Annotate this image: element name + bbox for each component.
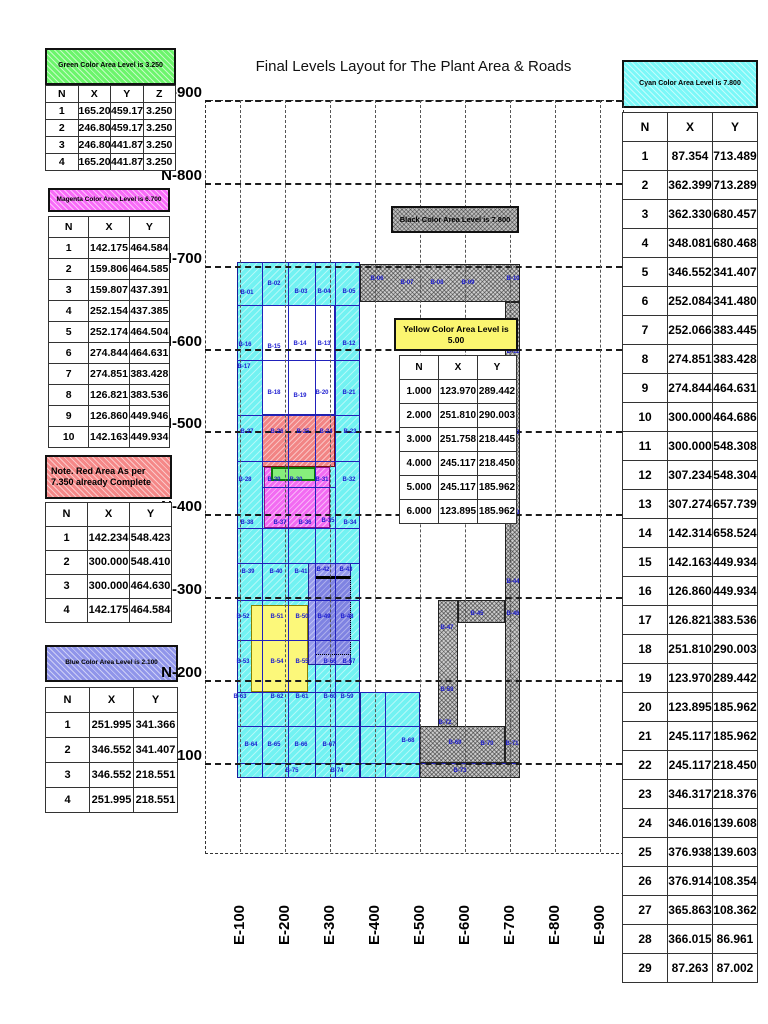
cell: 1: [46, 527, 88, 551]
cell: 274.851: [668, 345, 713, 374]
table-row: 16126.860449.934: [623, 577, 758, 606]
e-axis-label: E-700: [501, 857, 519, 945]
cell: 290.003: [713, 635, 758, 664]
green-table: NXYZ1165.201459.1773.2502246.802459.1783…: [45, 85, 176, 171]
e-gridline: [240, 100, 241, 852]
cell: 548.304: [713, 461, 758, 490]
cell: 289.442: [478, 380, 517, 404]
cell: 14: [623, 519, 668, 548]
cell: 10: [49, 427, 89, 448]
n-gridline: [205, 183, 622, 185]
block-label: B-24: [319, 429, 332, 435]
cell: 3.000: [400, 428, 439, 452]
cell: 1: [46, 103, 79, 120]
table-row: 6.000123.895185.962: [400, 500, 517, 524]
table-row: 6252.084341.480: [623, 287, 758, 316]
cell: 3: [46, 575, 88, 599]
cell: 218.445: [478, 428, 517, 452]
cell: 185.962: [478, 500, 517, 524]
block-label: B-35: [321, 518, 334, 524]
table-row: 1142.234548.423: [46, 527, 172, 551]
table-row: 2246.802459.1783.250: [46, 120, 176, 137]
cell: 274.851: [89, 364, 129, 385]
cell: 464.584: [129, 238, 169, 259]
table-row: 25376.938139.603: [623, 838, 758, 867]
cell: 3: [46, 763, 90, 788]
table-header-row: NXY: [400, 356, 517, 380]
cyan-table: NXY187.354713.4892362.399713.2893362.330…: [622, 112, 758, 983]
block-label: B-52: [236, 614, 249, 620]
table-row: 9274.844464.631: [623, 374, 758, 403]
cell: 2: [49, 259, 89, 280]
block-label: B-01: [240, 290, 253, 296]
page-title: Final Levels Layout for The Plant Area &…: [205, 58, 622, 75]
cell: 2: [623, 171, 668, 200]
cell: 3.250: [143, 120, 176, 137]
table-row: 1142.175464.584: [49, 238, 170, 259]
block-label: B-64: [244, 742, 257, 748]
block-label: B-21: [342, 390, 355, 396]
cell: 3: [46, 137, 79, 154]
e-gridline: [375, 100, 376, 852]
block-label: B-65: [267, 742, 280, 748]
cell: 86.961: [713, 925, 758, 954]
column-header: Y: [111, 86, 144, 103]
block-label: B-18: [267, 390, 280, 396]
cell: 8: [49, 385, 89, 406]
column-header: N: [400, 356, 439, 380]
table-row: 3362.330680.457: [623, 200, 758, 229]
block-label: B-36: [298, 520, 311, 526]
block-label: B-20: [315, 390, 328, 396]
cell: 449.946: [129, 406, 169, 427]
table-row: 3159.807437.391: [49, 280, 170, 301]
cell: 29: [623, 954, 668, 983]
block-label: B-14: [293, 341, 306, 347]
n-gridline: [205, 597, 622, 599]
cell: 13: [623, 490, 668, 519]
table-header-row: NXY: [46, 688, 178, 713]
cell: 464.585: [129, 259, 169, 280]
block-label: B-31: [315, 477, 328, 483]
block-label: B-69: [448, 740, 461, 746]
block-label: B-48: [340, 614, 353, 620]
cell: 9: [49, 406, 89, 427]
column-header: Y: [478, 356, 517, 380]
cell: 464.686: [713, 403, 758, 432]
cell: 17: [623, 606, 668, 635]
cell: 548.423: [130, 527, 172, 551]
table-row: 21245.117185.962: [623, 722, 758, 751]
block-label: B-67: [322, 742, 335, 748]
block-label: B-45: [470, 611, 483, 617]
cell: 680.457: [713, 200, 758, 229]
cell: 365.863: [668, 896, 713, 925]
n-axis-label: N-200: [130, 664, 202, 681]
table-row: 17126.821383.536: [623, 606, 758, 635]
table-row: 2.000251.810290.003: [400, 404, 517, 428]
block-label: B-05: [342, 289, 355, 295]
table-row: 26376.914108.354: [623, 867, 758, 896]
cell: 548.308: [713, 432, 758, 461]
block-label: B-04: [317, 289, 330, 295]
cell: 464.584: [130, 599, 172, 623]
block-label: B-73: [453, 768, 466, 774]
cell: 9: [623, 374, 668, 403]
cell: 11: [623, 432, 668, 461]
cell: 185.962: [713, 693, 758, 722]
cell: 2.000: [400, 404, 439, 428]
cell: 437.391: [129, 280, 169, 301]
cell: 383.445: [713, 316, 758, 345]
block-label: B-68: [401, 738, 414, 744]
cell: 5: [623, 258, 668, 287]
block-label: B-44: [506, 579, 519, 585]
table-row: 8274.851383.428: [623, 345, 758, 374]
e-axis-label: E-500: [411, 857, 429, 945]
cell: 341.407: [134, 738, 178, 763]
table-row: 2346.552341.407: [46, 738, 178, 763]
block-label: B-10: [506, 276, 519, 282]
block-label: B-17: [237, 364, 250, 370]
e-axis-label: E-900: [591, 857, 609, 945]
cell: 300.000: [88, 551, 130, 575]
cell: 23: [623, 780, 668, 809]
block-label: B-03: [294, 289, 307, 295]
block-label: B-27: [240, 429, 253, 435]
cell: 366.015: [668, 925, 713, 954]
cell: 346.317: [668, 780, 713, 809]
column-header: X: [668, 113, 713, 142]
cell: 307.274: [668, 490, 713, 519]
n-gridline: [205, 100, 622, 102]
yellow-legend-box: Yellow Color Area Level is 5.00: [394, 318, 518, 351]
e-axis-label: E-100: [231, 857, 249, 945]
cell: 24: [623, 809, 668, 838]
table-row: 5346.552341.407: [623, 258, 758, 287]
block-label: B-08: [430, 280, 443, 286]
cell: 185.962: [713, 722, 758, 751]
table-row: 15142.163449.934: [623, 548, 758, 577]
block-label: B-42: [316, 567, 329, 573]
table-row: 23346.317218.376: [623, 780, 758, 809]
table-row: 7252.066383.445: [623, 316, 758, 345]
cell: 126.860: [668, 577, 713, 606]
e-axis-label: E-200: [276, 857, 294, 945]
column-header: N: [49, 217, 89, 238]
cell: 252.154: [89, 301, 129, 322]
block-label: B-32: [342, 477, 355, 483]
cell: 4: [623, 229, 668, 258]
table-row: 4252.154437.385: [49, 301, 170, 322]
block-label: B-62: [270, 694, 283, 700]
cell: 218.450: [478, 452, 517, 476]
block-label: B-06: [370, 276, 383, 282]
yellow-table: NXY1.000123.970289.4422.000251.810290.00…: [399, 355, 517, 524]
cell: 1: [623, 142, 668, 171]
cell: 3.250: [143, 103, 176, 120]
cell: 123.970: [439, 380, 478, 404]
cell: 5.000: [400, 476, 439, 500]
cell: 6: [623, 287, 668, 316]
cell: 449.934: [713, 548, 758, 577]
cell: 346.552: [90, 763, 134, 788]
cell: 245.117: [439, 476, 478, 500]
cell: 680.468: [713, 229, 758, 258]
cell: 252.084: [668, 287, 713, 316]
cell: 383.428: [713, 345, 758, 374]
cell: 459.178: [111, 120, 144, 137]
cell: 4: [49, 301, 89, 322]
block-label: B-63: [233, 694, 246, 700]
cell: 218.551: [134, 763, 178, 788]
cell: 1: [49, 238, 89, 259]
table-row: 187.354713.489: [623, 142, 758, 171]
cell: 20: [623, 693, 668, 722]
cell: 383.428: [129, 364, 169, 385]
cell: 713.489: [713, 142, 758, 171]
e-gridline: [285, 100, 286, 852]
table-row: 4142.175464.584: [46, 599, 172, 623]
block-label: B-13: [317, 341, 330, 347]
cell: 251.810: [439, 404, 478, 428]
cell: 28: [623, 925, 668, 954]
cell: 139.608: [713, 809, 758, 838]
cell: 218.376: [713, 780, 758, 809]
cell: 459.177: [111, 103, 144, 120]
cell: 251.995: [90, 788, 134, 813]
cell: 307.234: [668, 461, 713, 490]
column-header: N: [46, 503, 88, 527]
cell: 87.002: [713, 954, 758, 983]
block-label: B-56: [323, 659, 336, 665]
cell: 274.844: [89, 343, 129, 364]
cell: 16: [623, 577, 668, 606]
table-row: 4.000245.117218.450: [400, 452, 517, 476]
cell: 658.524: [713, 519, 758, 548]
red-note-text: Note. Red Area As per 7.350 already Comp…: [51, 466, 151, 489]
cell: 142.175: [88, 599, 130, 623]
red-table: NXY1142.234548.4232300.000548.4103300.00…: [45, 502, 172, 623]
cell: 165.202: [78, 154, 111, 171]
cell: 437.385: [129, 301, 169, 322]
block-label: B-60: [323, 694, 336, 700]
cell: 185.962: [478, 476, 517, 500]
cell: 449.934: [129, 427, 169, 448]
table-row: 12307.234548.304: [623, 461, 758, 490]
block-label: B-74: [330, 768, 343, 774]
table-row: 4165.202441.8763.250: [46, 154, 176, 171]
table-row: 9126.860449.946: [49, 406, 170, 427]
table-header-row: NXY: [46, 503, 172, 527]
block-label: B-58: [440, 687, 453, 693]
cell: 12: [623, 461, 668, 490]
block-label: B-57: [342, 659, 355, 665]
block-label: B-75: [285, 768, 298, 774]
table-row: 2362.399713.289: [623, 171, 758, 200]
block-label: B-49: [317, 614, 330, 620]
cell: 252.174: [89, 322, 129, 343]
column-header: X: [90, 688, 134, 713]
column-header: Y: [134, 688, 178, 713]
red-note-box: Note. Red Area As per 7.350 already Comp…: [45, 455, 172, 499]
cell: 464.631: [713, 374, 758, 403]
cell: 346.016: [668, 809, 713, 838]
e-axis-label: E-300: [321, 857, 339, 945]
cell: 123.895: [439, 500, 478, 524]
block-label: B-71: [505, 741, 518, 747]
table-header-row: NXY: [623, 113, 758, 142]
e-gridline: [330, 100, 331, 852]
column-header: Y: [130, 503, 172, 527]
cell: 383.536: [713, 606, 758, 635]
table-row: 13307.274657.739: [623, 490, 758, 519]
cell: 362.330: [668, 200, 713, 229]
table-row: 4251.995218.551: [46, 788, 178, 813]
block-label: B-37: [273, 520, 286, 526]
table-row: 3.000251.758218.445: [400, 428, 517, 452]
cell: 341.407: [713, 258, 758, 287]
table-row: 1165.201459.1773.250: [46, 103, 176, 120]
block-label: B-16: [238, 342, 251, 348]
cell: 300.000: [88, 575, 130, 599]
table-row: 2300.000548.410: [46, 551, 172, 575]
table-row: 11300.000548.308: [623, 432, 758, 461]
block-label: B-23: [343, 429, 356, 435]
block-label: B-29: [267, 477, 280, 483]
cell: 159.806: [89, 259, 129, 280]
cell: 19: [623, 664, 668, 693]
table-header-row: NXYZ: [46, 86, 176, 103]
block-label: B-55: [295, 659, 308, 665]
cell: 2: [46, 738, 90, 763]
column-header: X: [78, 86, 111, 103]
table-row: 2987.26387.002: [623, 954, 758, 983]
cell: 252.066: [668, 316, 713, 345]
block-label: B-25: [296, 429, 309, 435]
cell: 4: [46, 599, 88, 623]
cell: 1.000: [400, 380, 439, 404]
cell: 290.003: [478, 404, 517, 428]
table-row: 1.000123.970289.442: [400, 380, 517, 404]
table-row: 27365.863108.362: [623, 896, 758, 925]
cell: 139.603: [713, 838, 758, 867]
block-label: B-72: [438, 720, 451, 726]
cell: 376.914: [668, 867, 713, 896]
table-row: 14142.314658.524: [623, 519, 758, 548]
e-gridline: [555, 100, 556, 852]
cell: 383.536: [129, 385, 169, 406]
table-row: 5252.174464.504: [49, 322, 170, 343]
column-header: N: [46, 86, 79, 103]
table-header-row: NXY: [49, 217, 170, 238]
cell: 7: [49, 364, 89, 385]
e-axis-label: E-600: [456, 857, 474, 945]
cell: 3.250: [143, 137, 176, 154]
cell: 126.860: [89, 406, 129, 427]
magenta-table: NXY1142.175464.5842159.806464.5853159.80…: [48, 216, 170, 448]
cell: 108.362: [713, 896, 758, 925]
black-legend-box: Black Color Area Level is 7.800: [391, 206, 519, 233]
cell: 245.117: [668, 751, 713, 780]
cell: 6: [49, 343, 89, 364]
column-header: N: [46, 688, 90, 713]
cell: 6.000: [400, 500, 439, 524]
cell: 3: [49, 280, 89, 301]
cell: 300.000: [668, 403, 713, 432]
cell: 108.354: [713, 867, 758, 896]
cell: 657.739: [713, 490, 758, 519]
cell: 8: [623, 345, 668, 374]
block-label: B-51: [270, 614, 283, 620]
block-label: B-47: [440, 625, 453, 631]
cell: 245.117: [439, 452, 478, 476]
cell: 441.878: [111, 137, 144, 154]
block-label: B-59: [340, 694, 353, 700]
table-row: 19123.970289.442: [623, 664, 758, 693]
column-header: Y: [129, 217, 169, 238]
cell: 464.631: [129, 343, 169, 364]
table-row: 7274.851383.428: [49, 364, 170, 385]
cell: 218.450: [713, 751, 758, 780]
block-label: B-39: [241, 569, 254, 575]
cell: 251.758: [439, 428, 478, 452]
magenta-legend-box: Magenta Color Area Level is 6.700: [48, 188, 170, 212]
e-gridline: [600, 100, 601, 852]
cell: 251.995: [90, 713, 134, 738]
cell: 10: [623, 403, 668, 432]
table-row: 2159.806464.585: [49, 259, 170, 280]
block-label: B-28: [238, 477, 251, 483]
cell: 15: [623, 548, 668, 577]
cell: 142.163: [668, 548, 713, 577]
block-label: B-46: [506, 611, 519, 617]
cell: 3: [623, 200, 668, 229]
cell: 4: [46, 788, 90, 813]
cell: 126.821: [668, 606, 713, 635]
cell: 4: [46, 154, 79, 171]
cell: 246.801: [78, 137, 111, 154]
e-axis-label: E-800: [546, 857, 564, 945]
table-row: 10300.000464.686: [623, 403, 758, 432]
cell: 245.117: [668, 722, 713, 751]
cell: 159.807: [89, 280, 129, 301]
cell: 346.552: [90, 738, 134, 763]
cell: 18: [623, 635, 668, 664]
cell: 2: [46, 120, 79, 137]
green-legend-box: Green Color Area Level is 3.250: [45, 48, 176, 85]
cell: 3.250: [143, 154, 176, 171]
block-label: B-53: [236, 659, 249, 665]
block-label: B-70: [480, 741, 493, 747]
cell: 548.410: [130, 551, 172, 575]
table-row: 3246.801441.8783.250: [46, 137, 176, 154]
cell: 300.000: [668, 432, 713, 461]
block-label: B-43: [339, 567, 352, 573]
column-header: X: [88, 503, 130, 527]
cell: 274.844: [668, 374, 713, 403]
cell: 142.175: [89, 238, 129, 259]
cell: 87.354: [668, 142, 713, 171]
block-label: B-66: [294, 742, 307, 748]
table-row: 24346.016139.608: [623, 809, 758, 838]
table-row: 3300.000464.630: [46, 575, 172, 599]
table-row: 28366.01586.961: [623, 925, 758, 954]
cell: 464.630: [130, 575, 172, 599]
cell: 22: [623, 751, 668, 780]
n-gridline: [205, 680, 622, 682]
table-row: 8126.821383.536: [49, 385, 170, 406]
